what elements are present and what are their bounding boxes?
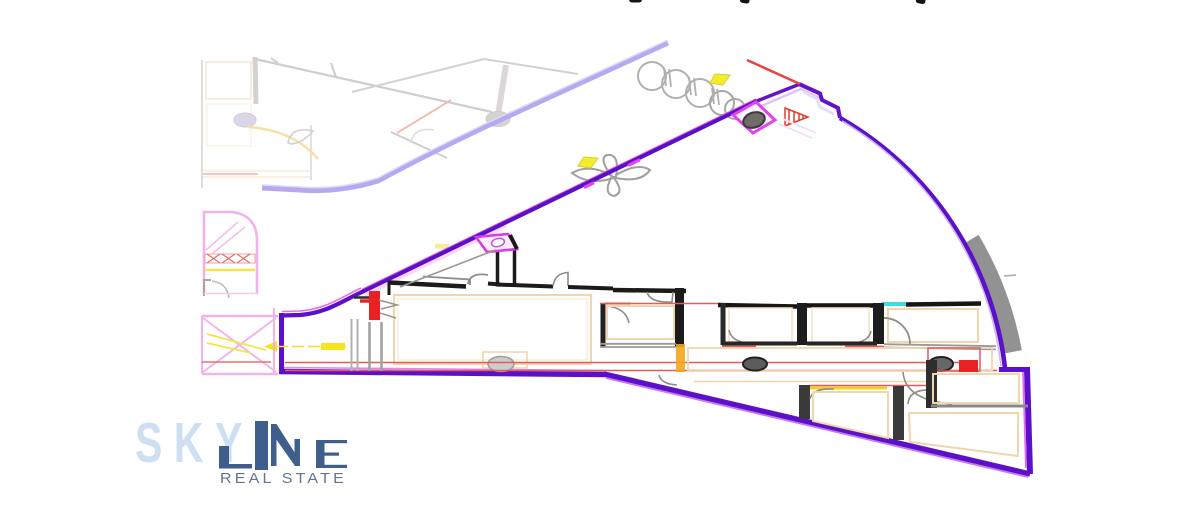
svg-text:REAL STATE: REAL STATE bbox=[220, 470, 347, 487]
